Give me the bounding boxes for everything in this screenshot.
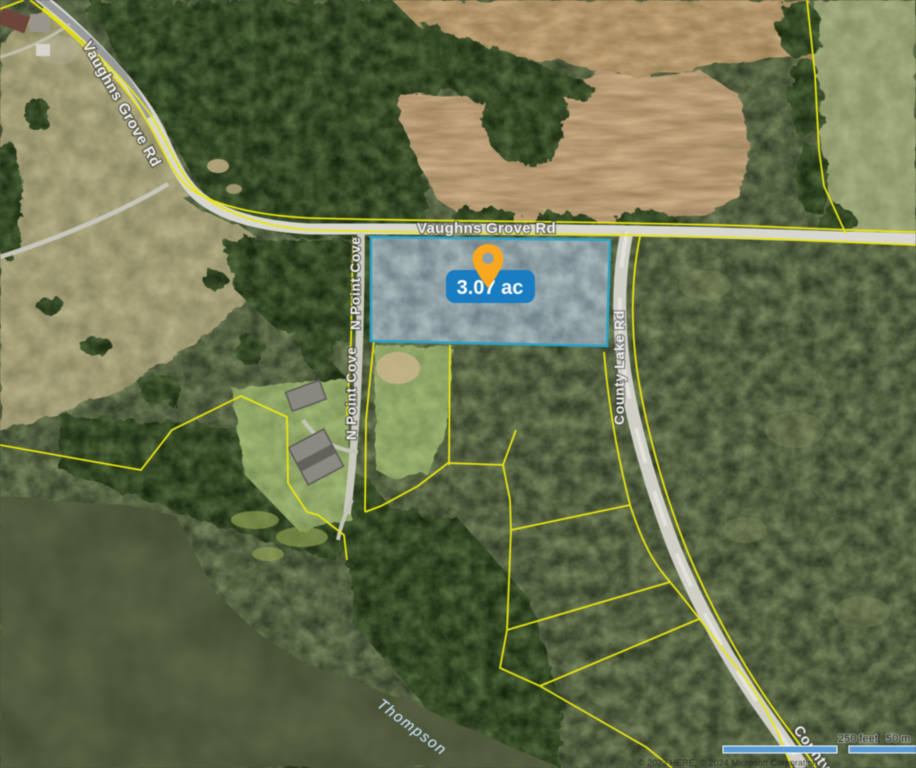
svg-text:250 feet: 250 feet [838,733,878,745]
svg-text:N Point Cove: N Point Cove [344,346,359,440]
svg-text:County Lake Rd: County Lake Rd [611,310,627,425]
svg-text:50 m: 50 m [886,733,910,745]
svg-text:Vaughns Grove Rd: Vaughns Grove Rd [417,220,556,237]
svg-text:© 2023 HERE, © 2024 Microsoft: © 2023 HERE, © 2024 Microsoft Corporatio… [638,758,817,768]
svg-text:N Point Cove: N Point Cove [348,236,363,330]
